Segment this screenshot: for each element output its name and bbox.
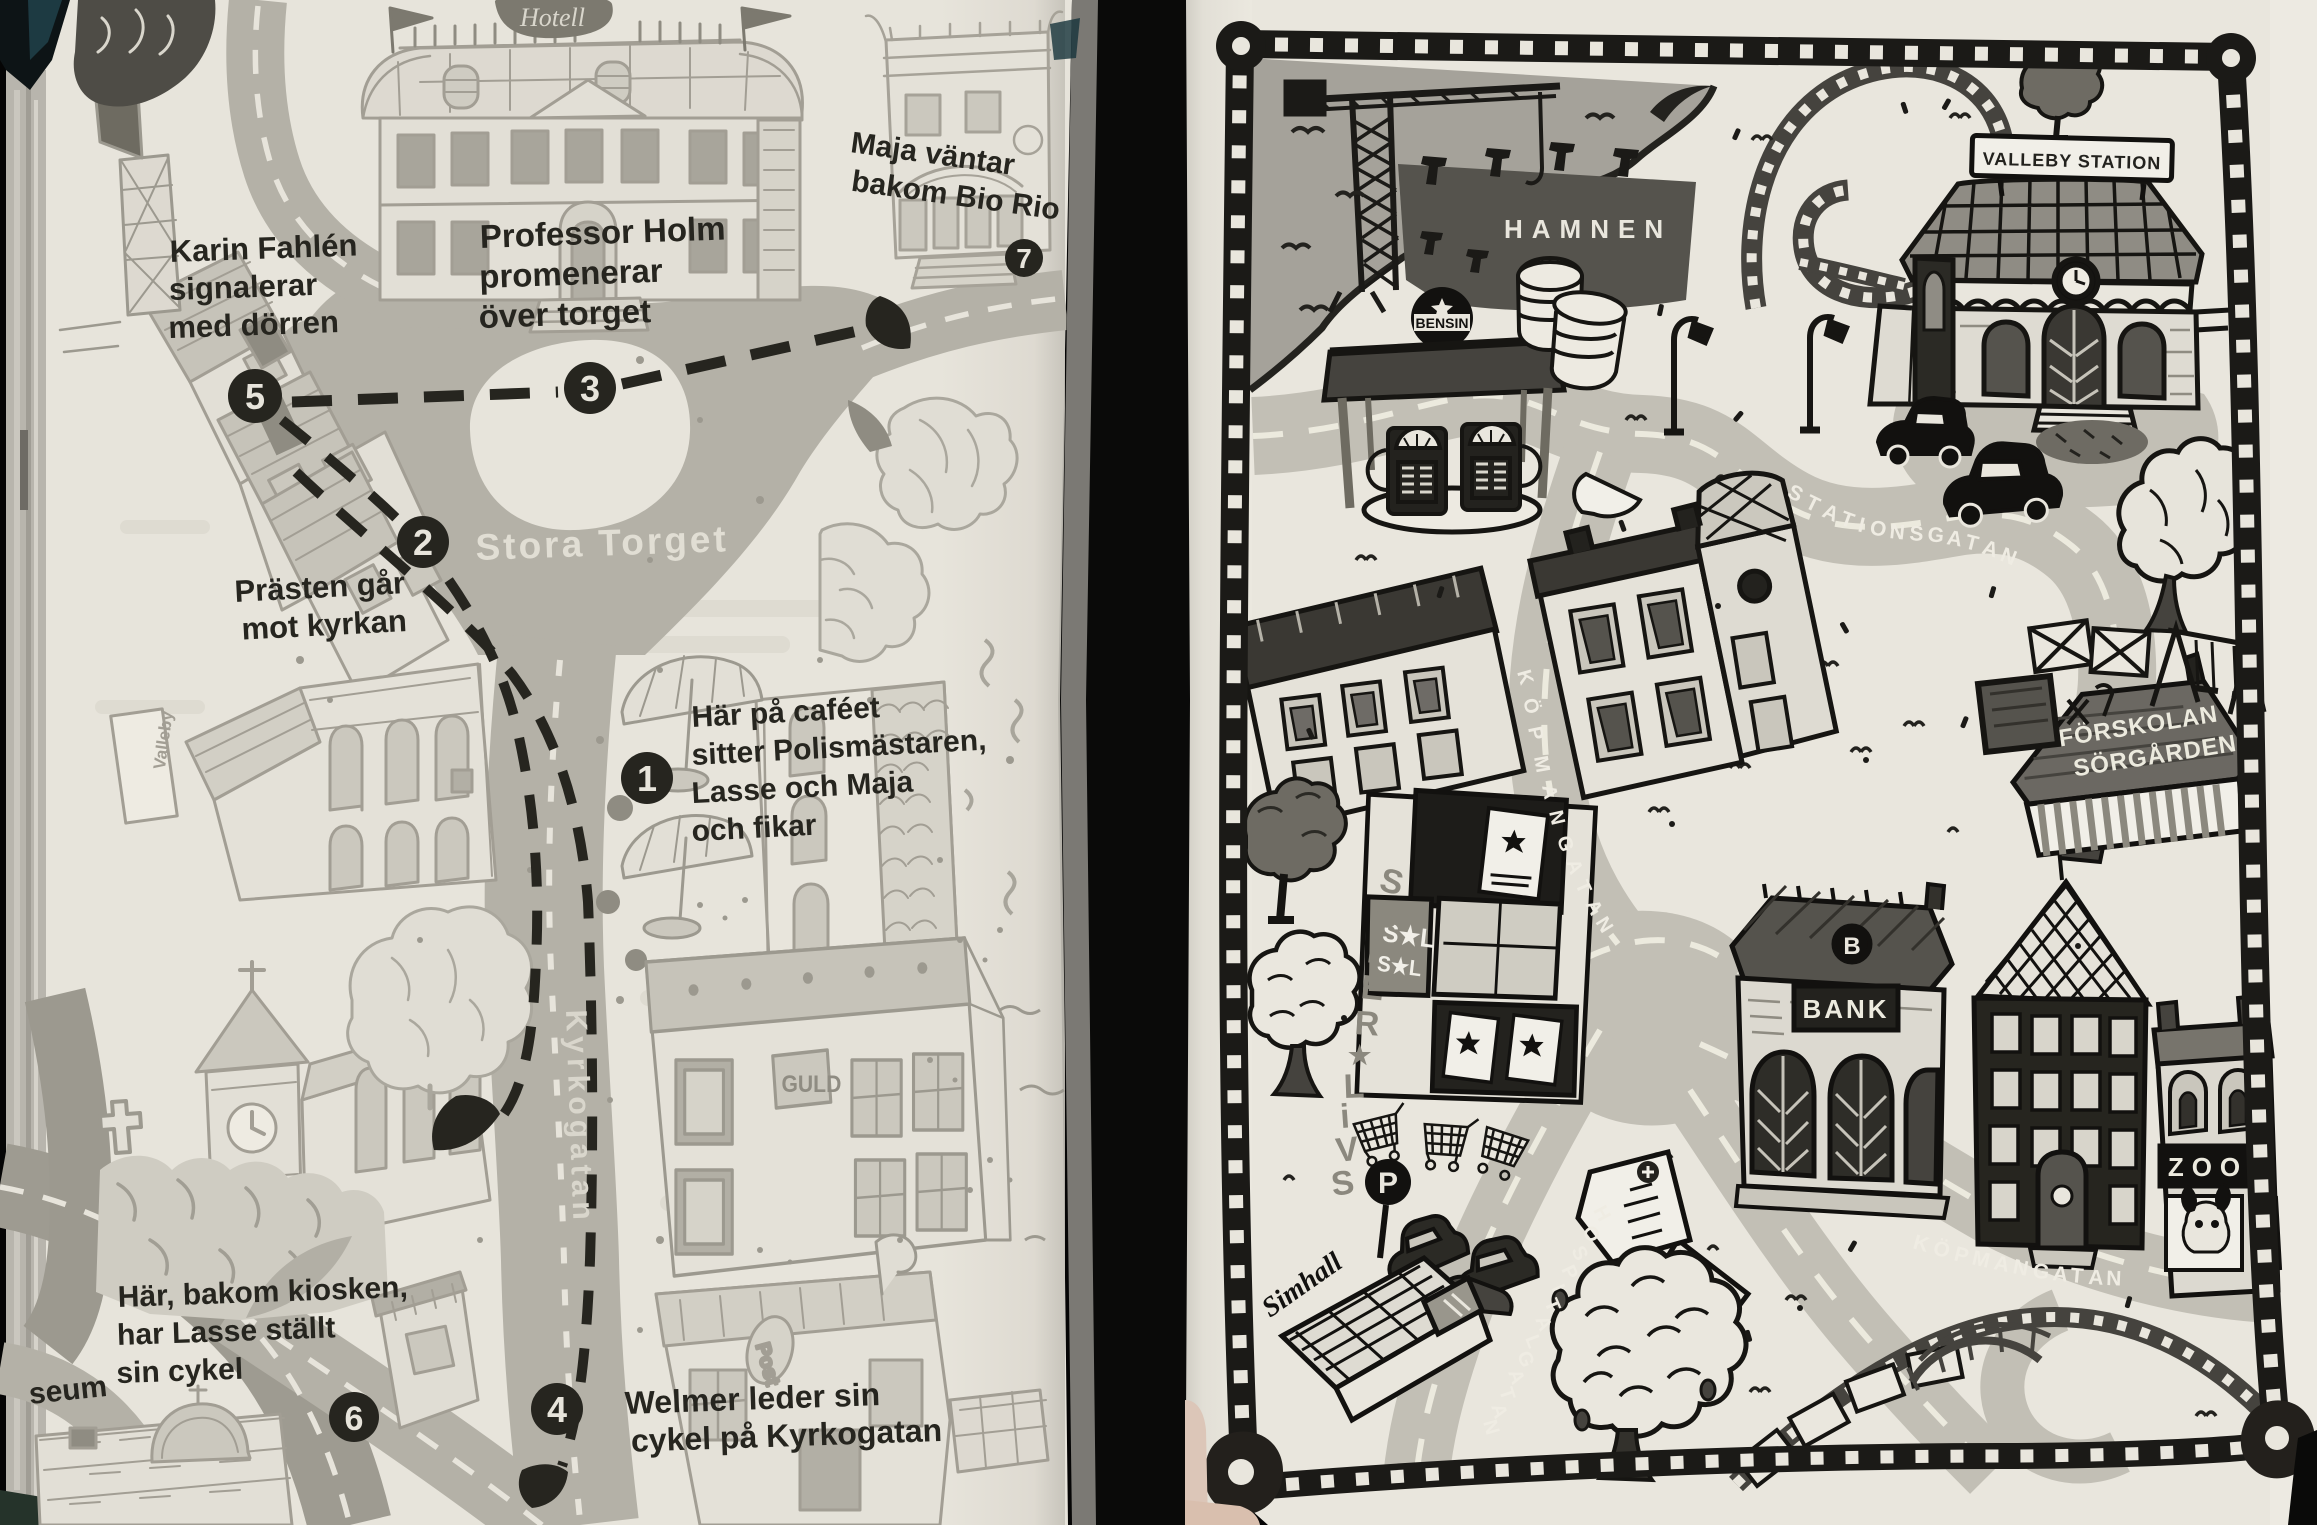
svg-text:★: ★ (1348, 1040, 1372, 1070)
svg-text:7: 7 (1016, 243, 1032, 274)
svg-text:E: E (1359, 968, 1386, 1008)
svg-text:Karin Fahlén: Karin Fahlén (169, 227, 358, 269)
svg-text:GULD: GULD (782, 1071, 842, 1098)
svg-text:B: B (1843, 933, 1860, 960)
svg-text:Hotell: Hotell (519, 3, 585, 32)
svg-text:BENSIN: BENSIN (1416, 315, 1469, 331)
svg-text:S: S (1909, 522, 1925, 546)
svg-text:5: 5 (245, 376, 265, 417)
svg-text:promenerar: promenerar (479, 252, 664, 295)
svg-text:4: 4 (547, 1389, 567, 1430)
svg-text:över torget: över torget (478, 292, 652, 335)
svg-text:och fikar: och fikar (691, 809, 818, 849)
svg-text:T: T (2070, 1264, 2085, 1288)
svg-text:N: N (2106, 1267, 2122, 1291)
svg-text:1: 1 (637, 758, 657, 799)
svg-text:6: 6 (345, 1400, 364, 1438)
svg-text:2: 2 (413, 522, 433, 563)
svg-text:3: 3 (580, 368, 600, 409)
svg-text:ZOO: ZOO (2168, 1152, 2248, 1182)
svg-text:A: A (2051, 1262, 2069, 1287)
svg-text:med dörren: med dörren (168, 304, 340, 345)
svg-text:N: N (1888, 520, 1905, 544)
svg-text:sin cykel: sin cykel (116, 1353, 244, 1390)
svg-text:HAMNEN: HAMNEN (1504, 214, 1672, 244)
svg-text:R: R (1353, 1004, 1380, 1044)
svg-text:A: A (2088, 1266, 2104, 1290)
svg-text:BANK: BANK (1802, 994, 1889, 1024)
svg-text:P: P (1378, 1167, 1398, 1200)
svg-text:G: G (1926, 523, 1945, 548)
svg-text:signalerar: signalerar (168, 267, 317, 307)
